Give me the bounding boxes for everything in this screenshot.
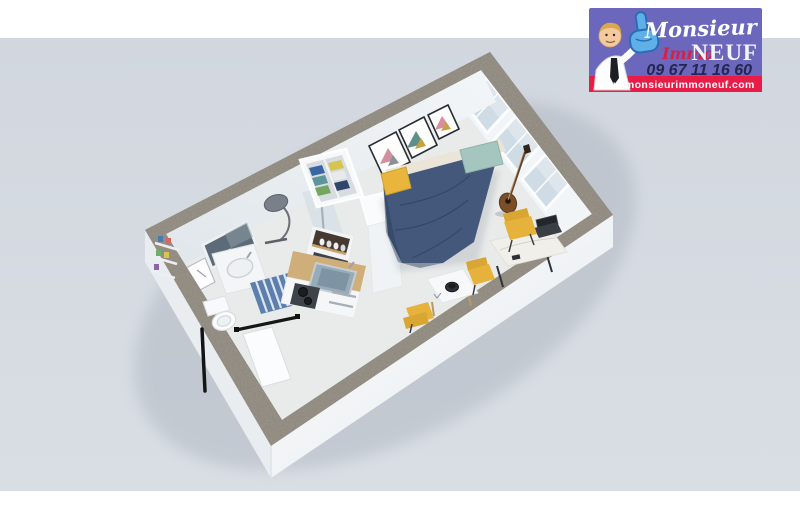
shelf-item (164, 252, 169, 258)
door-hinge (295, 314, 300, 319)
shelf-item (166, 238, 171, 244)
shelf-item (158, 236, 163, 242)
logo-phone-number: 09 67 11 16 60 (646, 62, 752, 79)
bowl-inner (448, 283, 456, 288)
mascot-eye (613, 34, 615, 36)
shelf-item (154, 264, 159, 270)
jar (320, 239, 325, 246)
logo-monsieur-immoneuf: Monsieur Immo NEUF 09 67 11 16 60 www.mo… (589, 8, 762, 92)
logo-brand-top: Monsieur (643, 14, 759, 43)
screenshot-root: Monsieur Immo NEUF 09 67 11 16 60 www.mo… (0, 0, 800, 529)
jar (334, 243, 339, 250)
jar (327, 241, 332, 248)
floor-plan-3d-render: Monsieur Immo NEUF 09 67 11 16 60 www.mo… (0, 0, 800, 529)
burner (305, 298, 312, 305)
burner (299, 288, 308, 297)
logo-website-url: www.monsieurimmoneuf.com (595, 79, 755, 91)
door-hinge (234, 327, 239, 332)
mascot-eye (605, 34, 607, 36)
shelf-item (156, 250, 161, 256)
jar (341, 245, 346, 252)
